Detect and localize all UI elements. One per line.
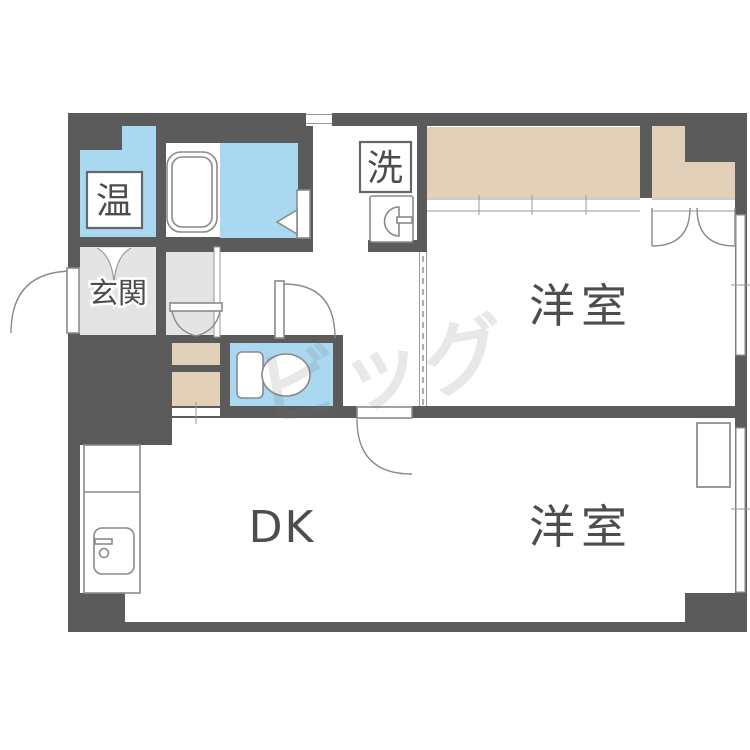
floor-plan: 温 玄関 洗 洋室 洋室 DK ビッグ <box>0 0 750 750</box>
entrance-door-leaf <box>67 268 79 333</box>
wall-closet-pillar <box>640 126 652 198</box>
wall-divider-right <box>412 406 747 418</box>
hall-closet-door-track <box>170 303 222 311</box>
wall-closet-divider <box>170 365 220 372</box>
washing-machine-tap <box>397 217 412 223</box>
wall-block-middle-left <box>68 335 172 445</box>
entrance-floor-right <box>166 247 215 337</box>
western-room-top-label: 洋室 <box>529 279 633 333</box>
kitchen-drain <box>100 549 109 558</box>
window-right-lower <box>736 428 745 592</box>
water-heater-label: 温 <box>96 181 132 222</box>
wall-toilet-left <box>220 343 230 406</box>
western-room-bottom-label: 洋室 <box>529 500 633 554</box>
closet-top-floor <box>425 127 640 198</box>
wall-corner-bottomright <box>685 593 747 632</box>
toilet-door-leaf <box>275 281 284 338</box>
hall-closet-upper-floor <box>170 343 220 365</box>
closet-topright-track <box>652 198 735 212</box>
laundry-label: 洗 <box>367 148 403 189</box>
shelf-unit <box>697 423 730 487</box>
wall-corner-bottomleft <box>68 593 125 632</box>
wall-bottom <box>68 622 747 632</box>
hall-closet-lower-floor <box>170 372 220 408</box>
entrance-label: 玄関 <box>89 276 147 310</box>
kitchen-faucet <box>95 539 112 544</box>
wall-top-right <box>332 113 747 126</box>
bathtub-inner <box>172 157 212 227</box>
closet-top-track <box>427 198 640 212</box>
wall-bath-top <box>156 126 313 143</box>
dining-kitchen-label: DK <box>249 502 316 553</box>
wall-block-topleft <box>68 126 122 150</box>
closet-topright-floor-a <box>652 126 685 162</box>
wall-entrance-top <box>80 237 220 247</box>
closet-topright-floor-b <box>652 160 735 198</box>
wall-toproom-left <box>417 126 427 252</box>
bath-door-jamb <box>297 190 310 238</box>
water-heater-room-floor-notch <box>122 126 156 152</box>
wall-top-left <box>68 113 306 126</box>
